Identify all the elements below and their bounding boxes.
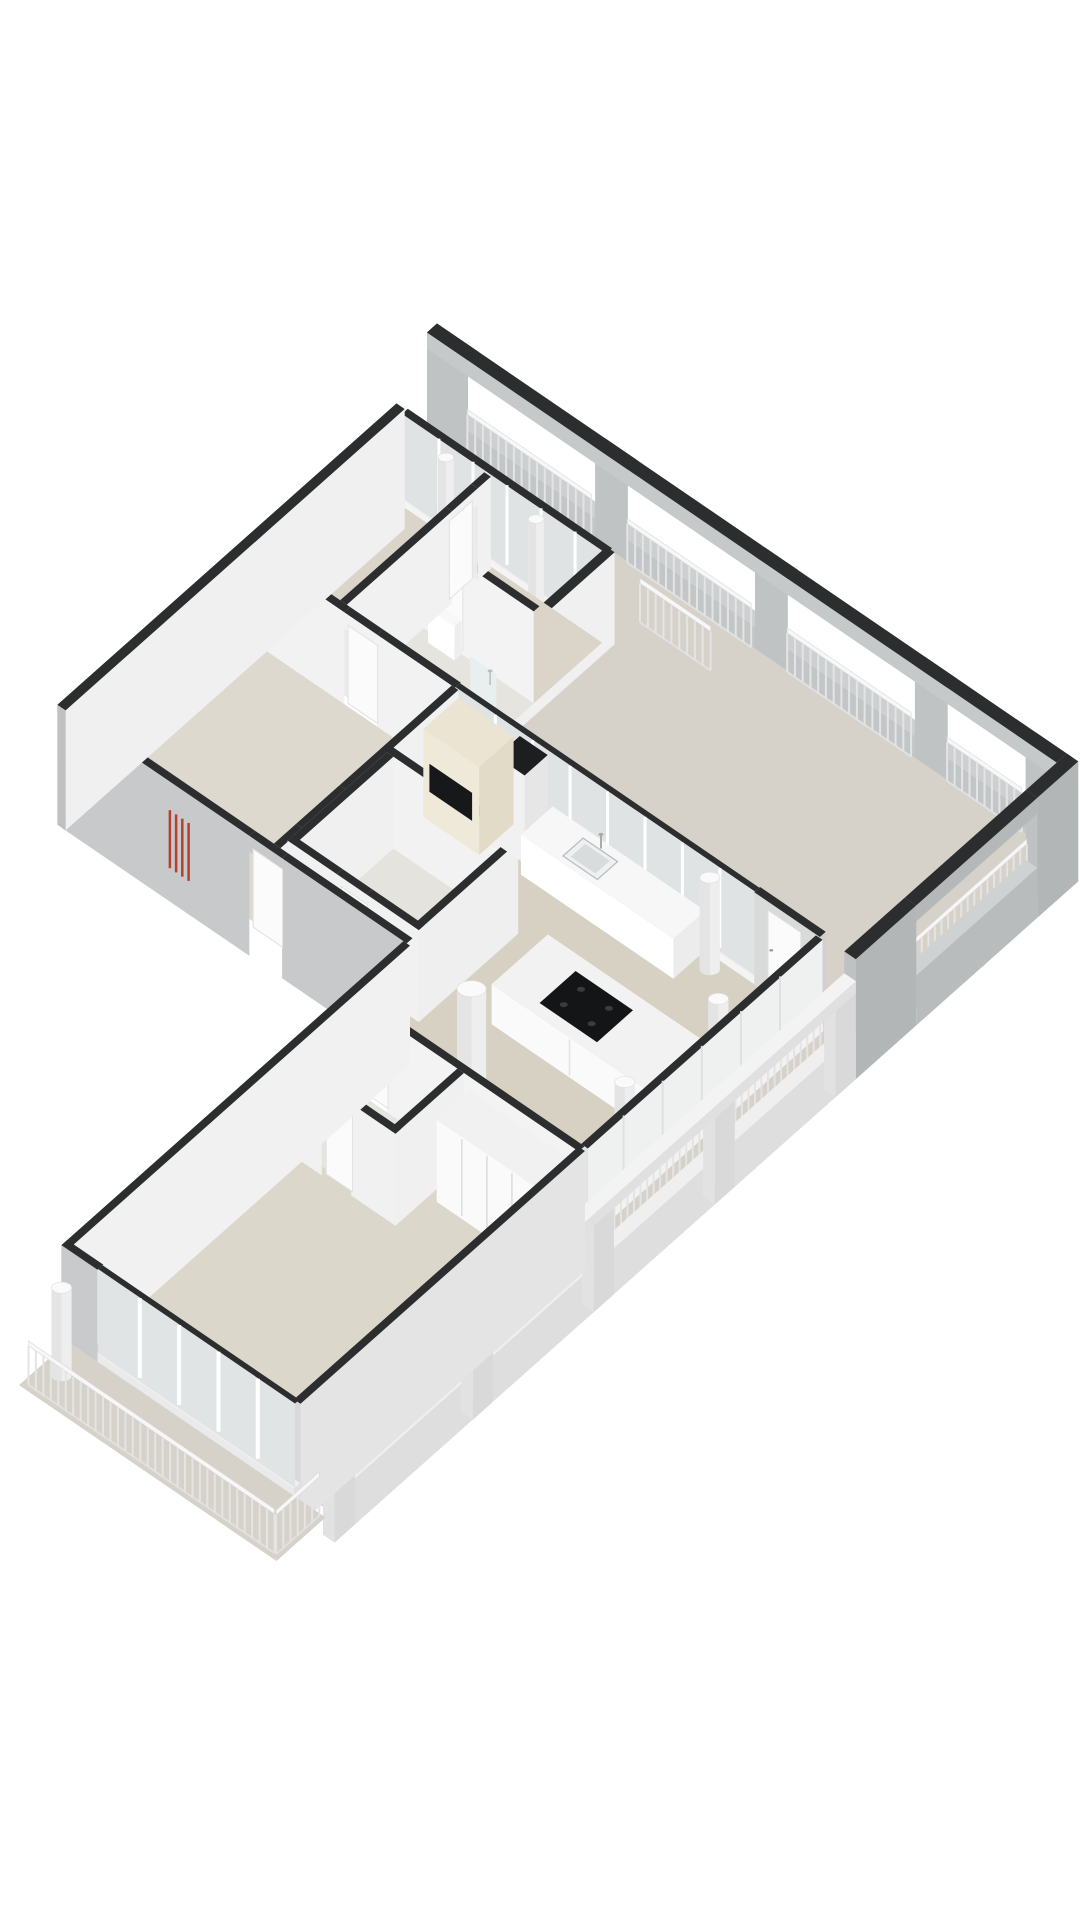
floorplan-3d-view xyxy=(0,0,1080,1920)
kitchen-faucet-head xyxy=(598,833,603,836)
balcony-door-handle xyxy=(769,949,773,951)
floorplan-canvas xyxy=(0,0,1080,1920)
column-living-1 xyxy=(700,872,720,975)
shower-head-dot xyxy=(488,669,493,672)
